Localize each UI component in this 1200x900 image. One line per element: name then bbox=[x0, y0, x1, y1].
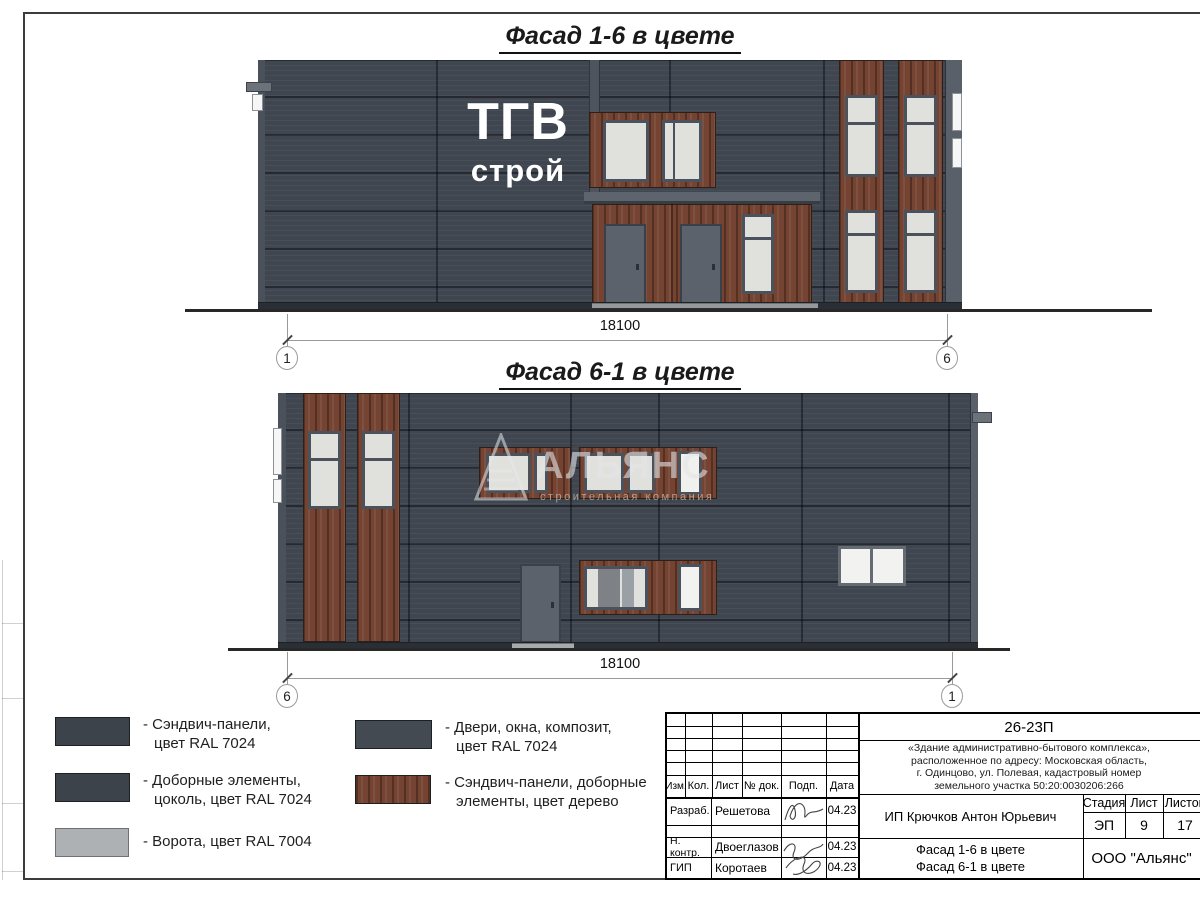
extension-line bbox=[287, 652, 288, 686]
title-block: Изм. Кол. Лист № док. Подп. Дата Разраб.… bbox=[665, 712, 1200, 880]
company-name: ООО "Альянс" bbox=[1083, 838, 1200, 878]
tgv-stroy-logo: ТГВ строй bbox=[438, 96, 598, 186]
corner-trim bbox=[970, 393, 978, 642]
axis-bubble: 1 bbox=[276, 346, 298, 370]
double-window bbox=[838, 546, 906, 586]
window bbox=[584, 453, 624, 493]
legend-item: - Двери, окна, композит, цвет RAL 7024 bbox=[445, 719, 612, 756]
ground-line bbox=[228, 648, 1010, 651]
extension-line bbox=[947, 314, 948, 348]
col-podp: Подп. bbox=[781, 775, 826, 797]
role-gip: ГИП bbox=[670, 857, 711, 878]
downpipe bbox=[252, 94, 263, 111]
role-ncontrol: Н. контр. bbox=[670, 837, 711, 857]
window bbox=[845, 210, 878, 293]
door-handle bbox=[551, 602, 554, 608]
margin-column-line bbox=[2, 560, 3, 880]
facade-6-1-drawing: АЛЬЯНС строительная компания bbox=[278, 393, 978, 650]
wood-seam bbox=[671, 204, 673, 303]
margin-divider bbox=[2, 871, 23, 872]
sheet-number: 9 bbox=[1125, 812, 1163, 838]
panel-joint bbox=[823, 60, 825, 303]
sheets-total: 17 bbox=[1163, 812, 1200, 838]
col-list: Лист bbox=[712, 775, 742, 797]
panel-joint bbox=[801, 393, 803, 642]
downpipe bbox=[952, 93, 962, 131]
door-handle bbox=[636, 264, 639, 270]
sheet-content: Фасад 1-6 в цвете Фасад 6-1 в цвете bbox=[858, 838, 1083, 878]
legend-swatch-trim-plinth bbox=[55, 773, 130, 802]
signature-control-gip bbox=[779, 838, 826, 878]
project-description: «Здание административно-бытового комплек… bbox=[858, 742, 1200, 794]
entrance-canopy bbox=[584, 192, 820, 204]
window bbox=[308, 431, 341, 509]
window bbox=[742, 214, 774, 294]
window bbox=[486, 453, 531, 493]
window bbox=[678, 564, 702, 611]
window bbox=[904, 95, 937, 177]
window bbox=[534, 453, 548, 493]
window bbox=[603, 120, 649, 182]
facade-1-6-drawing: ТГВ строй bbox=[258, 60, 962, 310]
entrance-door bbox=[604, 224, 646, 307]
door-handle bbox=[712, 264, 715, 270]
frame-left-line bbox=[23, 12, 25, 880]
facade-1-6-title: Фасад 1-6 в цвете bbox=[300, 22, 940, 51]
margin-divider bbox=[2, 698, 23, 699]
date-developer: 04.23 bbox=[826, 797, 858, 825]
ground-line bbox=[185, 309, 1152, 312]
window bbox=[662, 120, 702, 182]
legend-item: - Ворота, цвет RAL 7004 bbox=[143, 833, 312, 852]
panel-joint bbox=[570, 393, 572, 642]
panel-joint bbox=[669, 60, 671, 112]
date-ncontrol: 04.23 bbox=[826, 837, 858, 857]
entrance-slab bbox=[512, 643, 574, 648]
margin-divider bbox=[2, 623, 23, 624]
axis-bubble: 6 bbox=[276, 684, 298, 708]
logo-line-1: ТГВ bbox=[438, 96, 598, 148]
dimension-label: 18100 bbox=[540, 656, 700, 672]
legend-swatch-wood bbox=[355, 775, 431, 804]
door bbox=[520, 564, 561, 643]
downpipe bbox=[273, 428, 282, 475]
canopy-ledge bbox=[246, 82, 272, 92]
legend-item: - Сэндвич-панели, цвет RAL 7024 bbox=[143, 716, 271, 753]
dimension-label: 18100 bbox=[540, 318, 700, 334]
window bbox=[627, 453, 655, 493]
window bbox=[584, 566, 648, 610]
window bbox=[362, 431, 395, 509]
frame-top-line bbox=[23, 12, 1200, 14]
sheet-label: Лист bbox=[1125, 794, 1163, 812]
legend-item: - Доборные элементы, цоколь, цвет RAL 70… bbox=[143, 772, 312, 809]
date-gip: 04.23 bbox=[826, 857, 858, 878]
client-name: ИП Крючков Антон Юрьевич bbox=[858, 794, 1083, 838]
legend-swatch-doors-windows bbox=[355, 720, 432, 749]
doc-number: 26-23П bbox=[858, 714, 1200, 740]
entrance-door bbox=[680, 224, 722, 307]
col-data: Дата bbox=[826, 775, 858, 797]
panel-joint bbox=[408, 393, 410, 642]
window bbox=[678, 451, 702, 495]
legend-swatch-gates bbox=[55, 828, 129, 857]
window bbox=[845, 95, 878, 177]
legend-item: - Сэндвич-панели, доборные элементы, цве… bbox=[445, 774, 647, 811]
entrance-slab bbox=[592, 303, 818, 308]
name-gip: Коротаев bbox=[715, 857, 781, 878]
signature-developer bbox=[781, 798, 826, 825]
facade-6-1-title: Фасад 6-1 в цвете bbox=[300, 358, 940, 387]
name-ncontrol: Двоеглазов bbox=[715, 837, 781, 857]
axis-bubble: 1 bbox=[941, 684, 963, 708]
drawing-sheet: { "sheet": { "doc_number": "26-23П", "de… bbox=[0, 0, 1200, 900]
col-kol: Кол. bbox=[685, 775, 712, 797]
extension-line bbox=[952, 652, 953, 686]
legend-swatch-sandwich-panels bbox=[55, 717, 130, 746]
downpipe bbox=[952, 138, 962, 168]
window bbox=[904, 210, 937, 293]
extension-line bbox=[287, 314, 288, 348]
sheets-label: Листов bbox=[1163, 794, 1200, 812]
dimension-line bbox=[287, 678, 952, 679]
name-developer: Решетова bbox=[715, 797, 781, 825]
col-izm: Изм. bbox=[667, 775, 685, 797]
stage-value: ЭП bbox=[1083, 812, 1125, 838]
margin-divider bbox=[2, 803, 23, 804]
canopy-ledge bbox=[972, 412, 992, 423]
dimension-line bbox=[287, 340, 947, 341]
logo-line-2: строй bbox=[438, 155, 598, 186]
panel-joint bbox=[948, 393, 950, 642]
col-ndok: № док. bbox=[742, 775, 781, 797]
role-developer: Разраб. bbox=[670, 797, 711, 825]
downpipe bbox=[273, 479, 282, 503]
stage-label: Стадия bbox=[1083, 794, 1125, 812]
